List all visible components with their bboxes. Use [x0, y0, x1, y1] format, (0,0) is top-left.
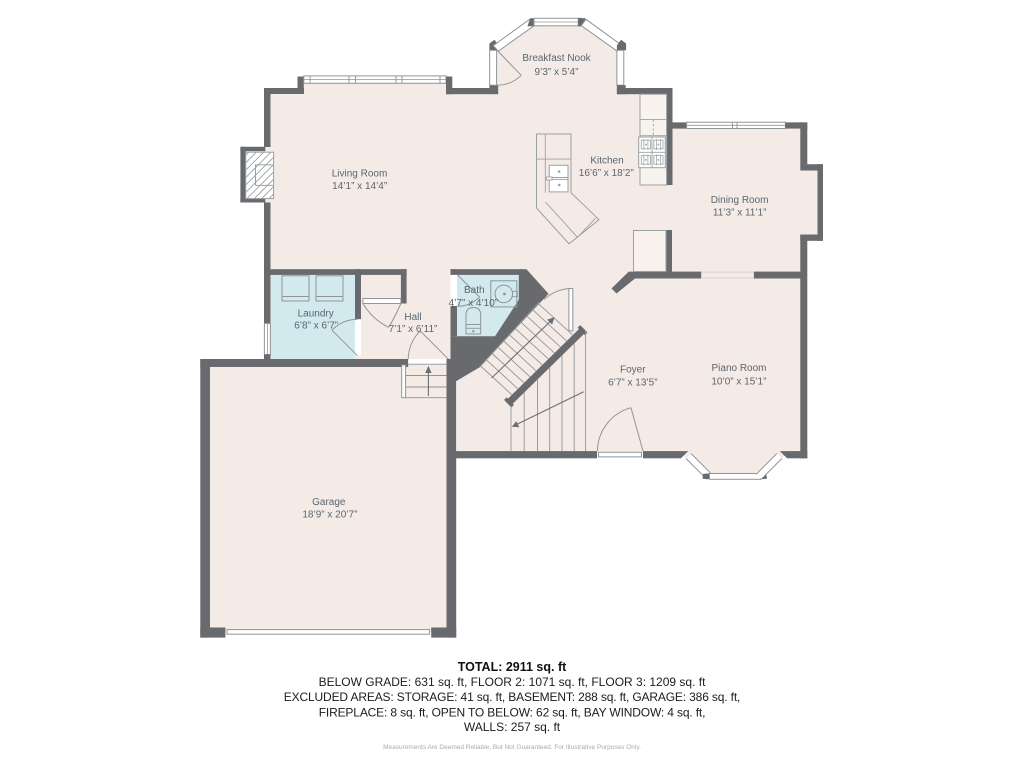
svg-text:Living Room: Living Room	[332, 169, 388, 180]
svg-text:BELOW GRADE: 631 sq. ft, FLOOR: BELOW GRADE: 631 sq. ft, FLOOR 2: 1071 s…	[319, 675, 706, 689]
svg-text:Foyer: Foyer	[620, 365, 646, 376]
svg-text:18’9” x 20’7”: 18’9” x 20’7”	[302, 510, 357, 521]
svg-text:TOTAL: 2911 sq. ft: TOTAL: 2911 sq. ft	[458, 660, 567, 674]
svg-text:Dining Room: Dining Room	[711, 195, 769, 206]
svg-text:11’3” x 11’1”: 11’3” x 11’1”	[713, 207, 767, 218]
svg-text:9’3” x 5’4”: 9’3” x 5’4”	[535, 67, 579, 78]
svg-text:Piano Room: Piano Room	[711, 363, 766, 374]
svg-text:Kitchen: Kitchen	[590, 155, 623, 166]
svg-text:Garage: Garage	[312, 497, 346, 508]
svg-text:Laundry: Laundry	[298, 309, 334, 320]
svg-text:EXCLUDED AREAS: STORAGE: 41 sq: EXCLUDED AREAS: STORAGE: 41 sq. ft, BASE…	[284, 690, 740, 704]
svg-text:Measurements Are Deemed Reliab: Measurements Are Deemed Reliable, But No…	[383, 744, 641, 751]
svg-text:6’7” x 13’5”: 6’7” x 13’5”	[608, 378, 657, 389]
svg-text:7’1” x 6’11”: 7’1” x 6’11”	[389, 324, 438, 335]
svg-text:4’7” x 4’10”: 4’7” x 4’10”	[449, 298, 498, 309]
svg-text:14’1” x 14’4”: 14’1” x 14’4”	[332, 181, 387, 192]
svg-text:10’0” x 15’1”: 10’0” x 15’1”	[711, 377, 766, 388]
svg-text:FIREPLACE: 8 sq. ft, OPEN TO B: FIREPLACE: 8 sq. ft, OPEN TO BELOW: 62 s…	[319, 706, 706, 720]
svg-text:16’6” x 18’2”: 16’6” x 18’2”	[579, 168, 634, 179]
svg-text:Hall: Hall	[404, 312, 421, 323]
svg-text:Breakfast Nook: Breakfast Nook	[522, 53, 591, 64]
svg-text:WALLS: 257 sq. ft: WALLS: 257 sq. ft	[464, 720, 561, 734]
svg-text:Bath: Bath	[464, 285, 485, 296]
svg-text:6’8” x 6’7”: 6’8” x 6’7”	[294, 321, 338, 332]
